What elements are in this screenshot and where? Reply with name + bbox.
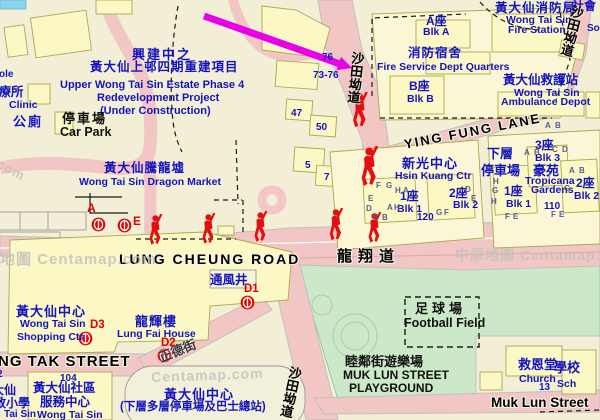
map-label: C [373, 214, 379, 222]
map-label: 學校 [554, 361, 580, 374]
map-label: D [465, 186, 471, 194]
map-label: 7 [324, 173, 330, 183]
map-label: H [491, 198, 497, 206]
map-label: 5 [305, 161, 311, 171]
map-label: 黃大仙消防局 [495, 2, 576, 15]
map-label: Blk 1 [506, 199, 531, 210]
map-label: Tai Sin [4, 410, 36, 420]
map-label: A [569, 167, 575, 175]
map-label: G [386, 182, 392, 190]
map-label: NG TAK STREET [0, 354, 131, 369]
map-label: Blk B [407, 94, 434, 105]
map-label: (Under Construction) [100, 106, 211, 117]
map-label: Redevelopment Project [97, 93, 219, 104]
map-label: 消防宿舍 [408, 47, 462, 60]
map-label: 停車場 [62, 112, 107, 125]
map-label: E [559, 211, 564, 219]
map-label: 76 [322, 53, 333, 63]
map-label: Wong Tai Sin [20, 319, 86, 330]
map-label: B [579, 167, 585, 175]
map-label: 2座 [576, 177, 595, 189]
map-label: A [524, 149, 530, 157]
map-label: 公廁 [13, 115, 43, 128]
map-label: 1座 [504, 185, 523, 197]
map-label: H [493, 178, 499, 186]
map-labels: 興建中之黃大仙上邨四期重建項目Upper Wong Tai Sin Estate… [0, 0, 600, 420]
map-label: 龍輝樓 [135, 315, 177, 328]
watermark: 地圖 Centamap.com [0, 252, 157, 267]
map-label: Shopping Ctr [17, 332, 84, 343]
map-label: 下層 [487, 147, 513, 160]
map-label: 服務中心 [40, 396, 90, 409]
map-label: 50 [316, 123, 327, 133]
map-label: E [471, 195, 476, 203]
map-label: MUK LUN STREET [343, 369, 449, 381]
mtr-exit-letter: D3 [90, 320, 105, 332]
mtr-exit-letter: D2 [161, 338, 176, 350]
map-label: Car Park [60, 126, 111, 139]
map-label: D [562, 146, 568, 154]
map-label: C [552, 146, 558, 154]
map-label: 73-76 [313, 71, 339, 81]
map-label: Wong Tai Sin [37, 410, 103, 420]
map-label: G [492, 187, 498, 195]
map-label: 黃大仙騰龍墟 [104, 162, 185, 175]
map-label: 龍翔道 [337, 249, 400, 264]
map-label: 通風井 [210, 274, 248, 287]
map-label: Lung Fai House [117, 329, 196, 340]
street-map-canvas[interactable]: 興建中之黃大仙上邨四期重建項目Upper Wong Tai Sin Estate… [0, 0, 600, 420]
map-label: 大仙 [0, 384, 16, 396]
map-label: Wong Tai Sin Dragon Market [79, 177, 221, 188]
mtr-exit-letter: A [87, 202, 96, 214]
map-label: Fire Station [508, 25, 566, 36]
map-label: B [555, 122, 561, 130]
map-label: 黃大仙中心 [16, 305, 86, 318]
watermark: 中原地圖 Centamap.co [455, 248, 600, 262]
map-label: Fire Service Dept Quarters [377, 62, 509, 73]
map-label: 睦鄰街遊樂場 [345, 355, 423, 368]
map-label: Church [519, 374, 556, 385]
map-label: 停車場 [481, 164, 520, 177]
map-label: 救恩堂 [518, 358, 557, 371]
map-label: E [513, 213, 518, 221]
map-label: 黃大仙上邨四期重建項目 [90, 61, 239, 74]
map-label: 黃大仙救護站 [503, 74, 578, 87]
map-label: H [394, 204, 400, 212]
watermark: Centamap.com [151, 366, 264, 384]
map-label: G [564, 185, 570, 193]
map-label: 2 [0, 370, 3, 380]
map-label: E [368, 195, 373, 203]
map-label: 新光中心 [402, 157, 458, 170]
map-label: A [387, 204, 393, 212]
map-label: (下層多層停車場及巴士總站) [120, 402, 266, 414]
map-label: A [403, 187, 409, 195]
map-label: So [587, 24, 600, 34]
map-label: Hsin Kuang Ctr [395, 171, 471, 182]
map-label: Muk Lun Street [491, 396, 589, 410]
map-label: 足球場 [415, 302, 466, 315]
map-label: 黃大仙中心 [164, 388, 234, 401]
map-label: YING FUNG LANE [403, 111, 542, 151]
map-label: B [382, 214, 388, 222]
map-label: Ambulance Depot [501, 97, 590, 108]
map-label: 黃大仙社區 [33, 382, 96, 395]
watermark: .com [0, 155, 27, 183]
map-label: 120 [417, 213, 434, 223]
map-label: G [436, 209, 442, 217]
mtr-exit-letter: E [133, 215, 141, 227]
map-label: F [505, 213, 510, 221]
map-label: A [545, 122, 551, 130]
map-label: Blk A [423, 27, 449, 38]
map-label: F [551, 211, 556, 219]
map-label: 沙田坳道 [278, 365, 302, 419]
map-label: 沙田坳道 [346, 51, 365, 104]
map-label: PLAYGROUND [349, 382, 433, 394]
map-label: Football Field [404, 317, 485, 330]
map-label: H [395, 187, 401, 195]
map-label: 13 [539, 383, 550, 393]
map-label: B [534, 149, 540, 157]
mtr-exit-letter: D1 [244, 284, 259, 296]
map-label: Sch [557, 379, 576, 390]
map-label: Blk 2 [574, 191, 599, 202]
map-label: 診療所 [0, 86, 24, 99]
map-label: 47 [291, 109, 302, 119]
map-label: Upper Wong Tai Sin Estate Phase 4 [60, 80, 244, 91]
map-label: B座 [409, 80, 430, 92]
map-label: ole [0, 70, 13, 80]
map-label: 教小學 [0, 397, 30, 409]
map-label: D [366, 205, 372, 213]
map-label: Clinic [9, 100, 38, 111]
map-label: F [444, 209, 449, 217]
map-label: F [376, 182, 381, 190]
